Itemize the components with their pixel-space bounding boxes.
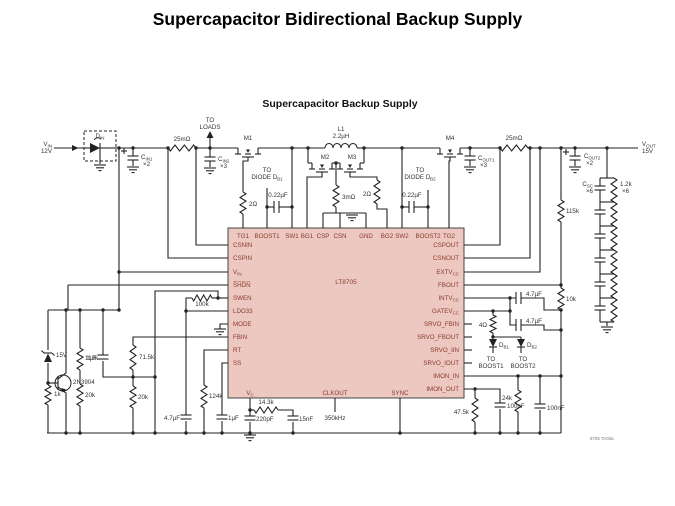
resistor	[500, 145, 528, 151]
resistor	[45, 385, 51, 405]
junction-dot	[491, 335, 494, 338]
junction-dot	[473, 387, 476, 390]
label-0.22µF: 0.22µF	[268, 192, 288, 199]
wire	[521, 325, 561, 330]
label-350kHz: 350kHz	[325, 415, 346, 422]
label-2Ω: 2Ω	[249, 201, 257, 208]
junction-dot	[559, 308, 562, 311]
pin-BG2: BG2	[381, 233, 394, 240]
pin-SYNC: SYNC	[391, 390, 409, 397]
junction-dot	[538, 374, 541, 377]
label-TO: TO	[263, 167, 272, 174]
label-15V: 15V	[642, 148, 654, 155]
label-71.5k: 71.5k	[139, 354, 155, 361]
label-DIODE-D: DIODE DB1	[251, 174, 283, 182]
label-×3: ×3	[480, 162, 488, 169]
wire	[278, 410, 293, 416]
resistor	[611, 298, 617, 322]
junction-dot	[184, 309, 187, 312]
junction-dot	[491, 309, 494, 312]
label-BOOST1: BOOST1	[478, 363, 504, 370]
pin-BOOST1: BOOST1	[254, 233, 280, 240]
junction-dot	[573, 146, 576, 149]
junction-dot	[334, 161, 337, 164]
label-LOADS: LOADS	[200, 124, 221, 131]
junction-dot	[248, 431, 251, 434]
label-D: DIN	[96, 133, 105, 141]
junction-dot	[153, 431, 156, 434]
label-20k: 20k	[85, 392, 96, 399]
label-D: DB2	[527, 342, 537, 350]
pin-CSNIN: CSNIN	[233, 242, 252, 249]
zener-bar	[52, 353, 55, 356]
label-100nF: 100nF	[547, 405, 565, 412]
pin-GND: GND	[359, 233, 373, 240]
resistor	[611, 178, 617, 202]
label-220pF: 220pF	[256, 416, 274, 423]
label-M4: M4	[446, 135, 455, 142]
junction-dot	[184, 431, 187, 434]
label-124k: 124k	[209, 393, 223, 400]
junction-dot	[516, 374, 519, 377]
pin-CSNOUT: CSNOUT	[433, 255, 459, 262]
wire	[377, 204, 387, 228]
label-4.7µF: 4.7µF	[526, 318, 542, 325]
schematic-canvas: LT8705 TG1BOOST1SW1BG1CSPCSNGNDBG2SW2BOO…	[0, 0, 675, 506]
resistor	[77, 348, 83, 370]
pin-IMON_IN: IMON_IN	[433, 373, 459, 380]
mosfet-arrow	[348, 165, 352, 169]
wire	[464, 389, 500, 403]
label-M2: M2	[321, 154, 330, 161]
label-47.5k: 47.5k	[454, 409, 470, 416]
label-2.2µH: 2.2µH	[333, 133, 350, 140]
label-2N3904: 2N3904	[73, 379, 95, 386]
resistor	[611, 274, 617, 298]
junction-dot	[166, 146, 169, 149]
label-4.7µF: 4.7µF	[526, 291, 542, 298]
resistor	[254, 407, 278, 413]
wire	[220, 324, 228, 329]
diode-db2	[517, 339, 525, 347]
junction-dot	[117, 270, 120, 273]
label-100nF: 100nF	[507, 403, 525, 410]
label-15nF: 15nF	[299, 416, 313, 423]
junction-dot	[290, 146, 293, 149]
label-1k: 1k	[54, 391, 61, 398]
pin-SRVO_IIN: SRVO_IIN	[430, 347, 459, 354]
label-M1: M1	[244, 135, 253, 142]
junction-dot	[46, 381, 49, 384]
resistor	[130, 345, 136, 370]
label-1.2k: 1.2k	[620, 181, 633, 188]
wire	[243, 157, 248, 192]
pin-SWEN: SWEN	[233, 295, 252, 302]
junction-dot	[101, 308, 104, 311]
junction-dot	[538, 431, 541, 434]
label-DIODE-D: DIODE DB2	[404, 174, 436, 182]
junction-dot	[216, 296, 219, 299]
wire	[133, 337, 228, 345]
junction-dot	[194, 146, 197, 149]
pin-CLKOUT: CLKOUT	[322, 390, 347, 397]
junction-dot	[400, 205, 403, 208]
pin-FBIN: FBIN	[233, 334, 247, 341]
pin-BG1: BG1	[301, 233, 314, 240]
pin-LDO33: LDO33	[233, 308, 253, 315]
label-M3: M3	[348, 154, 357, 161]
pin-SRVO_FBOUT: SRVO_FBOUT	[417, 334, 459, 341]
resistor	[77, 384, 83, 406]
pin-TG1: TG1	[237, 233, 250, 240]
junction-dot	[64, 431, 67, 434]
junction-dot	[498, 146, 501, 149]
wire	[222, 363, 228, 415]
label-TO: TO	[206, 117, 215, 124]
junction-dot	[426, 205, 429, 208]
resistor	[201, 385, 207, 408]
resistor	[374, 180, 380, 204]
wire	[103, 361, 133, 377]
label-25mΩ: 25mΩ	[506, 135, 523, 142]
junction-dot	[64, 308, 67, 311]
wire	[464, 148, 530, 258]
junction-dot	[508, 296, 511, 299]
pin-S̅H̅D̅N̅: S̅H̅D̅N̅	[233, 282, 251, 289]
label-25mΩ: 25mΩ	[174, 136, 191, 143]
junction-dot	[605, 146, 608, 149]
junction-dot	[265, 205, 268, 208]
junction-dot	[117, 308, 120, 311]
resistor	[611, 250, 617, 274]
mosfet-arrow	[246, 150, 250, 154]
resistor	[558, 288, 564, 310]
pin-CSPOUT: CSPOUT	[433, 242, 459, 249]
label-TO: TO	[416, 167, 425, 174]
zener-diode	[44, 354, 52, 363]
wire	[204, 350, 228, 385]
label-14.3k: 14.3k	[258, 399, 274, 406]
resistor	[333, 185, 339, 207]
pin-SRVO_FBIN: SRVO_FBIN	[424, 321, 459, 328]
label-TO: TO	[519, 356, 528, 363]
junction-dot	[248, 408, 251, 411]
zener-bar	[42, 351, 45, 354]
pin-CSPIN: CSPIN	[233, 255, 252, 262]
junction-dot	[117, 146, 120, 149]
junction-dot	[538, 146, 541, 149]
label-10k: 10k	[566, 296, 577, 303]
label-1µF: 1µF	[228, 415, 239, 422]
label-×6: ×6	[622, 188, 630, 195]
junction-dot	[290, 205, 293, 208]
junction-dot	[528, 146, 531, 149]
label-24k: 24k	[502, 395, 513, 402]
label-BOOST2: BOOST2	[510, 363, 536, 370]
junction-dot	[220, 431, 223, 434]
label-8705-TA03a: 8705 TA03a	[590, 436, 614, 441]
label-115k: 115k	[566, 208, 580, 215]
pin-TG2: TG2	[443, 233, 456, 240]
label-12V: 12V	[41, 148, 53, 155]
junction-dot	[78, 431, 81, 434]
diode-db1	[489, 339, 497, 347]
label-2Ω: 2Ω	[363, 191, 371, 198]
resistor	[490, 315, 496, 333]
label-4Ω: 4Ω	[479, 322, 487, 329]
junction-dot	[398, 431, 401, 434]
pin-BOOST2: BOOST2	[415, 233, 441, 240]
label-3mΩ: 3mΩ	[342, 194, 356, 201]
pin-CSP: CSP	[317, 233, 330, 240]
pin-IMON_OUT: IMON_OUT	[426, 386, 459, 393]
junction-dot	[362, 146, 365, 149]
junction-dot	[202, 431, 205, 434]
label-20k: 20k	[138, 394, 149, 401]
wire	[186, 298, 192, 311]
chip-lt8705	[228, 228, 464, 398]
label-100k: 100k	[195, 301, 209, 308]
junction-dot	[78, 308, 81, 311]
label-×6: ×6	[586, 188, 594, 195]
pin-RT: RT	[233, 347, 241, 354]
wire	[58, 310, 66, 379]
wire	[449, 157, 450, 228]
mosfet-arrow	[320, 165, 324, 169]
junction-dot	[559, 146, 562, 149]
page: Supercapacitor Bidirectional Backup Supp…	[0, 0, 675, 506]
junction-dot	[508, 309, 511, 312]
junction-dot	[559, 328, 562, 331]
label-×2: ×2	[143, 161, 151, 168]
label-D: DB1	[499, 342, 509, 350]
junction-dot	[153, 375, 156, 378]
junction-dot	[291, 431, 294, 434]
diode-din	[90, 143, 100, 153]
wire	[521, 298, 561, 310]
junction-dot	[468, 146, 471, 149]
wire	[307, 172, 322, 228]
pin-SW1: SW1	[285, 233, 299, 240]
pin-SS: SS	[233, 360, 241, 367]
label-×2: ×2	[586, 160, 594, 167]
mosfet-arrow	[448, 150, 452, 154]
label-4.7µF: 4.7µF	[164, 415, 180, 422]
pin-SRVO_IOUT: SRVO_IOUT	[423, 360, 459, 367]
resistor	[611, 202, 617, 226]
junction-dot	[131, 375, 134, 378]
resistor	[611, 226, 617, 250]
junction-dot	[131, 431, 134, 434]
inductor	[325, 144, 357, 149]
junction-dot	[306, 146, 309, 149]
label-0.22µF: 0.22µF	[402, 192, 422, 199]
junction-dot	[400, 146, 403, 149]
resistor	[472, 398, 478, 422]
resistor	[168, 145, 196, 151]
resistor	[558, 200, 564, 222]
label-×3: ×3	[220, 163, 228, 170]
junction-dot	[473, 431, 476, 434]
chip-name-label: LT8705	[335, 279, 357, 286]
junction-dot	[208, 146, 211, 149]
junction-dot	[559, 374, 562, 377]
junction-dot	[131, 146, 134, 149]
pin-MODE: MODE	[233, 321, 252, 328]
wire	[350, 172, 377, 180]
to-loads-arrow	[207, 131, 214, 138]
wire	[168, 148, 228, 258]
pin-FBOUT: FBOUT	[438, 282, 459, 289]
junction-dot	[559, 283, 562, 286]
label-15V: 15V	[56, 352, 68, 359]
junction-dot	[498, 431, 501, 434]
resistor	[240, 192, 246, 214]
label-TO: TO	[487, 356, 496, 363]
pin-SW2: SW2	[395, 233, 409, 240]
label-L1: L1	[338, 126, 345, 133]
pin-CSN: CSN	[333, 233, 346, 240]
junction-dot	[516, 431, 519, 434]
resistor	[130, 386, 136, 408]
vin-arrow	[72, 145, 79, 151]
label-1µF: 1µF	[86, 355, 97, 362]
